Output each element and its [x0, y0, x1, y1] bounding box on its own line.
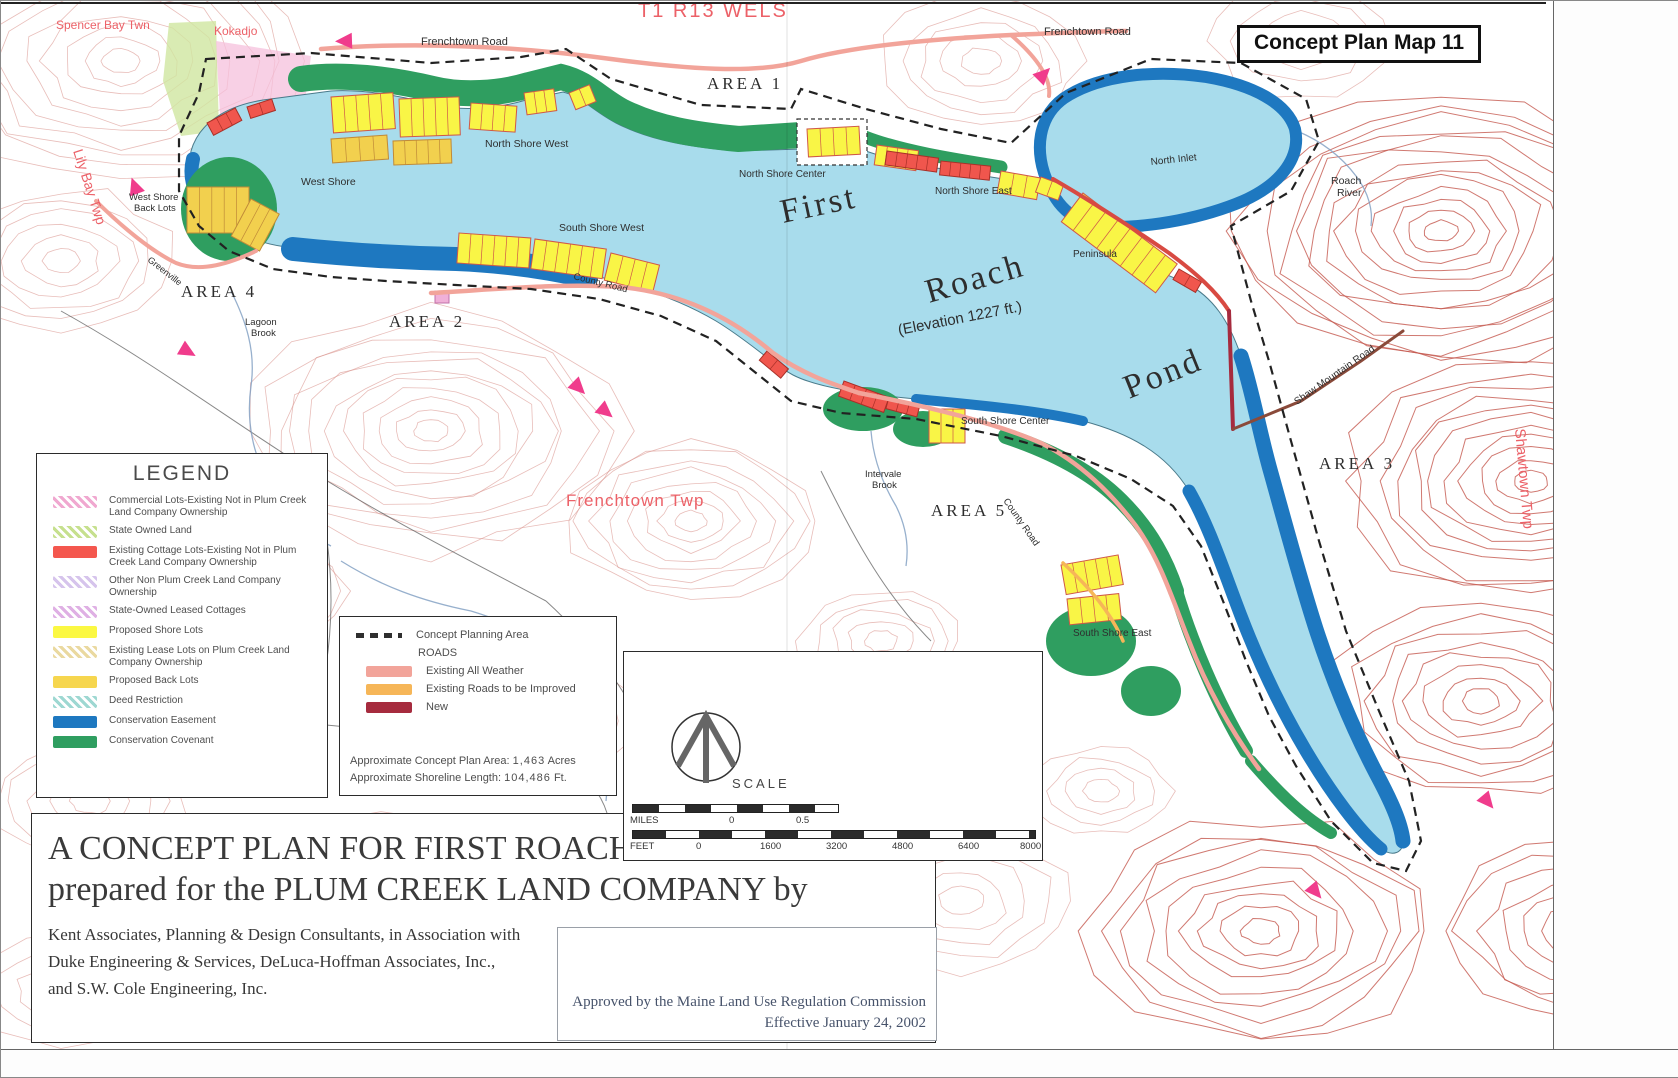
lot-strip: [524, 89, 557, 115]
plan-stats: Approximate Concept Plan Area: 1,463 Acr…: [350, 753, 576, 787]
contour-line: [1423, 665, 1543, 738]
map-sheet-title: Concept Plan Map 11: [1237, 25, 1481, 63]
contour-line: [1443, 678, 1520, 725]
contour-line: [1082, 779, 1119, 802]
contour-line: [281, 340, 600, 532]
shoreline-stat: Approximate Shoreline Length: 104,486 Ft…: [350, 770, 576, 787]
scale-tick: 0: [729, 815, 734, 826]
contour-line: [1197, 894, 1318, 969]
scale-title: SCALE: [732, 776, 790, 791]
plan-area-stat: Approximate Concept Plan Area: 1,463 Acr…: [350, 753, 576, 770]
feet-unit-label: FEET: [630, 841, 654, 852]
scale-tick: 4800: [892, 841, 913, 852]
map-label: AREA 3: [1319, 454, 1395, 473]
plan-area-label: Approximate Concept Plan Area:: [350, 755, 510, 767]
contour-line: [1102, 838, 1420, 1038]
road-legend-item: Existing All Weather: [352, 665, 604, 677]
shoreline-value: 104,486: [504, 772, 551, 784]
map-label: Intervale: [865, 469, 901, 480]
legend-label: Conservation Covenant: [109, 735, 214, 747]
legend-item: State-Owned Leased Cottages: [45, 605, 319, 618]
legend-label: Existing Lease Lots on Plum Creek Land C…: [109, 645, 319, 668]
legend-swatch: [53, 576, 97, 588]
map-label: South Shore East: [1073, 628, 1152, 639]
contour-line: [1309, 150, 1569, 309]
map-label: AREA 4: [181, 282, 257, 301]
map-label: North Shore Center: [739, 169, 826, 180]
legend-label: State-Owned Leased Cottages: [109, 605, 246, 617]
sheet-top-border: [1, 2, 1546, 4]
scale-tick: 3200: [826, 841, 847, 852]
road-label: Existing All Weather: [426, 665, 524, 677]
legend-panel: LEGEND Commercial Lots-Existing Not in P…: [36, 453, 328, 798]
legend-item: Deed Restriction: [45, 695, 319, 708]
legend-item: Proposed Shore Lots: [45, 625, 319, 638]
direction-arrow: [1476, 790, 1499, 813]
shoreline-unit: Ft.: [554, 772, 567, 784]
road-legend-item: Existing Roads to be Improved: [352, 683, 604, 695]
legend-swatch: [53, 626, 97, 638]
direction-arrow: [594, 400, 617, 423]
contour-line: [939, 886, 984, 914]
plan-legend-panel: Concept Planning Area ROADS Existing All…: [339, 616, 617, 796]
road-label: Existing Roads to be Improved: [426, 683, 576, 695]
legend-item: Conservation Covenant: [45, 735, 319, 748]
road-swatch: [366, 684, 412, 695]
contour-line: [379, 397, 482, 464]
contour-line: [1240, 919, 1280, 945]
map-label: West Shore: [129, 192, 178, 203]
contour-line: [1424, 220, 1458, 241]
miles-scale-bar: [632, 804, 839, 813]
legend-item: Commercial Lots-Existing Not in Plum Cre…: [45, 495, 319, 518]
legend-swatch: [53, 716, 97, 728]
lot-strip: [393, 139, 452, 165]
plan-title-line2: prepared for the PLUM CREEK LAND COMPANY…: [48, 869, 935, 910]
plan-area-value: 1,463: [513, 755, 546, 767]
legend-title: LEGEND: [45, 462, 319, 486]
contour-line: [1371, 186, 1506, 270]
lot-strip: [331, 93, 395, 133]
lot-strip: [469, 103, 517, 132]
map-label: Kokadjo: [214, 24, 258, 38]
lot-strip: [457, 233, 531, 268]
contour-line: [21, 235, 98, 287]
contour-line: [610, 467, 776, 570]
legend-swatch: [53, 676, 97, 688]
road-swatch: [366, 702, 412, 713]
contour-line: [865, 631, 898, 652]
legend-label: Commercial Lots-Existing Not in Plum Cre…: [109, 495, 319, 518]
legend-item: Existing Cottage Lots-Existing Not in Pl…: [45, 545, 319, 568]
feet-scale-bar: [632, 830, 1036, 839]
map-label: Brook: [251, 328, 276, 339]
contour-line: [397, 410, 466, 451]
sheet-bottom-margin: [1, 1049, 1678, 1078]
legend-label: Conservation Easement: [109, 715, 216, 727]
road-label: New: [426, 701, 448, 713]
contour-line: [1047, 758, 1155, 826]
legend-item: Proposed Back Lots: [45, 675, 319, 688]
sheet-right-margin: [1553, 1, 1678, 1077]
map-sheet: Spencer Bay TwnKokadjoT1 R13 WELSFrencht…: [0, 0, 1678, 1078]
dashed-line-swatch: [356, 633, 402, 638]
lot-strip: [807, 126, 860, 157]
lot-strip: [1061, 555, 1123, 595]
legend-label: State Owned Land: [109, 525, 192, 537]
map-label: North Shore West: [485, 138, 568, 150]
map-label: Frenchtown Twp: [566, 491, 704, 510]
roads-items: Existing All WeatherExisting Roads to be…: [352, 665, 604, 713]
contour-line: [324, 371, 532, 499]
legend-label: Other Non Plum Creek Land Company Owners…: [109, 575, 319, 598]
plan-area-unit: Acres: [548, 755, 576, 767]
state-owned-land-patch: [163, 21, 219, 136]
contour-line: [85, 37, 160, 87]
legend-swatch: [53, 736, 97, 748]
contour-line: [1327, 160, 1562, 309]
contour-line: [344, 377, 519, 486]
approval-line: Effective January 24, 2002: [765, 1013, 926, 1034]
contour-line: [1065, 768, 1135, 814]
map-label: South Shore Center: [961, 416, 1050, 427]
contour-line: [940, 36, 1022, 87]
lot-strip: [331, 135, 389, 163]
shoreline-label: Approximate Shoreline Length:: [350, 772, 501, 784]
contour-line: [101, 48, 140, 72]
roads-title: ROADS: [418, 647, 604, 659]
contour-line: [1394, 199, 1490, 263]
contour-line: [1409, 210, 1475, 252]
legend-item: Conservation Easement: [45, 715, 319, 728]
map-label: AREA 2: [389, 312, 465, 331]
planning-area-row: Concept Planning Area: [352, 629, 604, 641]
legend-swatch: [53, 526, 97, 538]
map-label: Roach: [1331, 175, 1362, 187]
scale-tick: 0: [696, 841, 701, 852]
map-label: Peninsula: [1073, 249, 1117, 260]
contour-line: [1393, 643, 1570, 765]
contour-line: [1220, 906, 1299, 956]
contour-line: [68, 23, 178, 94]
map-label: Back Lots: [134, 203, 176, 214]
map-label: Greenville: [146, 255, 184, 288]
legend-swatch: [53, 696, 97, 708]
map-label: West Shore: [301, 176, 356, 188]
map-label: Lily Bay Twp: [70, 147, 109, 227]
lot-strip: [399, 97, 460, 137]
map-label: Spencer Bay Twn: [56, 18, 150, 32]
contour-line: [569, 439, 815, 600]
legend-items: Commercial Lots-Existing Not in Plum Cre…: [45, 495, 319, 748]
map-label: Shaw Mountain Road: [1292, 344, 1377, 408]
legend-label: Proposed Back Lots: [109, 675, 199, 687]
road-swatch: [366, 666, 412, 677]
contour-line: [414, 420, 448, 442]
contour-line: [675, 510, 707, 532]
direction-arrow: [1304, 880, 1327, 903]
road-legend-item: New: [352, 701, 604, 713]
contour-line: [1166, 867, 1353, 994]
contour-line: [589, 461, 794, 583]
legend-item: Existing Lease Lots on Plum Creek Land C…: [45, 645, 319, 668]
direction-arrow: [177, 341, 200, 363]
map-label: River: [1337, 187, 1362, 199]
legend-swatch: [53, 546, 97, 558]
legend-swatch: [53, 606, 97, 618]
map-label: AREA 5: [931, 501, 1007, 520]
direction-arrow: [1032, 62, 1055, 85]
scale-tick: 1600: [760, 841, 781, 852]
legend-label: Existing Cottage Lots-Existing Not in Pl…: [109, 545, 319, 568]
contour-line: [1462, 689, 1499, 714]
contour-line: [42, 249, 80, 273]
contour-line: [290, 352, 562, 518]
legend-swatch: [53, 646, 97, 658]
map-label: North Shore East: [935, 186, 1012, 197]
legend-item: Other Non Plum Creek Land Company Owners…: [45, 575, 319, 598]
contour-line: [961, 48, 1001, 74]
legend-swatch: [53, 496, 97, 508]
planning-area-label: Concept Planning Area: [416, 629, 529, 641]
scale-tick: 0.5: [796, 815, 809, 826]
scale-tick: 6400: [958, 841, 979, 852]
approval-line: Approved by the Maine Land Use Regulatio…: [572, 992, 926, 1013]
legend-item: State Owned Land: [45, 525, 319, 538]
map-label: Frenchtown Road: [1044, 26, 1131, 38]
map-label: T1 R13 WELS: [638, 1, 788, 22]
miles-unit-label: MILES: [630, 815, 659, 826]
map-label: County Road: [1001, 496, 1042, 548]
map-label: Brook: [872, 480, 897, 491]
legend-label: Proposed Shore Lots: [109, 625, 203, 637]
contour-line: [1120, 838, 1400, 1023]
map-label: AREA 1: [707, 74, 783, 93]
scale-tick: 8000: [1020, 841, 1041, 852]
map-label: Frenchtown Road: [421, 36, 508, 48]
approval-box: Approved by the Maine Land Use Regulatio…: [557, 927, 937, 1041]
contour-line: [1178, 881, 1337, 977]
map-label: Lagoon: [245, 317, 277, 328]
map-label: South Shore West: [559, 222, 644, 234]
legend-label: Deed Restriction: [109, 695, 183, 707]
scale-panel: SCALE MILES FEET 00.50160032004800640080…: [623, 651, 1043, 861]
